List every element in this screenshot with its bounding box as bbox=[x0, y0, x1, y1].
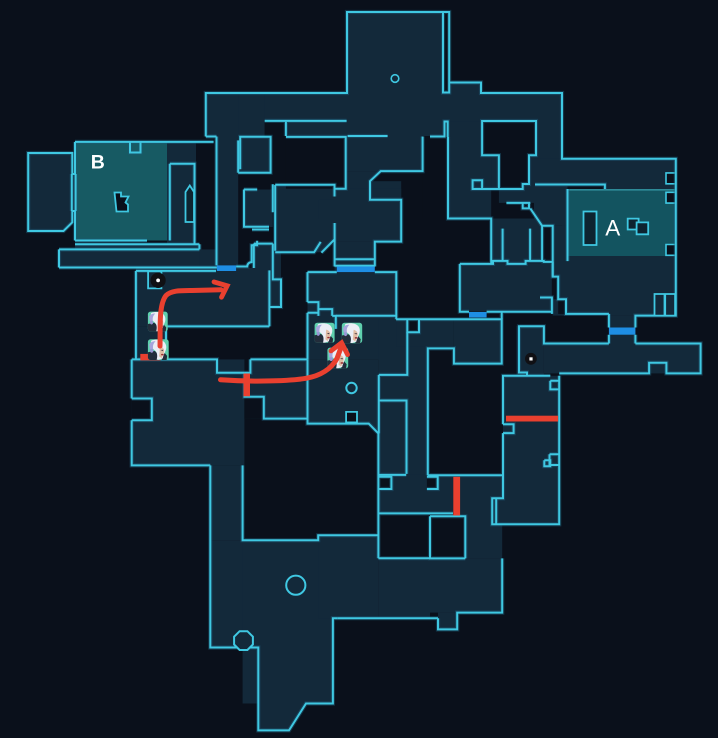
svg-text:B: B bbox=[91, 151, 105, 173]
svg-text:A: A bbox=[605, 216, 620, 241]
